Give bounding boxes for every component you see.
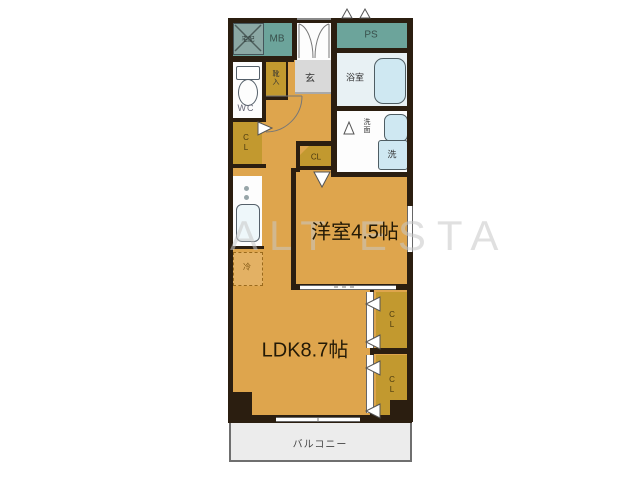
pipe-space-label: PS — [364, 30, 377, 41]
closet-fold-markers — [366, 297, 380, 418]
western-room-label: 洋室4.5帖 — [311, 216, 399, 245]
balcony-label: バルコニー — [293, 436, 348, 451]
meter-box-label: MB — [270, 34, 285, 45]
toilet-door-wedge — [258, 122, 272, 135]
ldk-label: LDK8.7帖 — [262, 334, 349, 363]
vent-markers — [342, 9, 370, 18]
washroom-label: 洗面 — [361, 118, 371, 134]
entry-double-door — [299, 24, 329, 58]
floor-plan: 洋室4.5帖 LDK8.7帖 バルコニー MB PS 宅配 WC 玄 靴入 浴室… — [0, 0, 640, 480]
refrigerator-label: 冷 — [243, 262, 251, 273]
bath-label: 浴室 — [346, 71, 364, 84]
bedroom-closet-label: CL — [311, 153, 321, 162]
ldk-closet-upper-label: CL — [388, 310, 397, 330]
hall-closet-label: CL — [242, 133, 251, 153]
washroom-door-marker — [344, 122, 354, 134]
shoe-box-label: 靴入 — [270, 70, 280, 86]
toilet-label: WC — [238, 103, 255, 113]
washer-label: 洗 — [387, 148, 396, 161]
hall-door-arc — [266, 96, 302, 132]
bedroom-door-wedge — [314, 172, 330, 187]
entrance-label: 玄 — [305, 70, 315, 85]
delivery-box-label: 宅配 — [242, 33, 255, 43]
ldk-closet-lower-label: CL — [388, 375, 397, 395]
